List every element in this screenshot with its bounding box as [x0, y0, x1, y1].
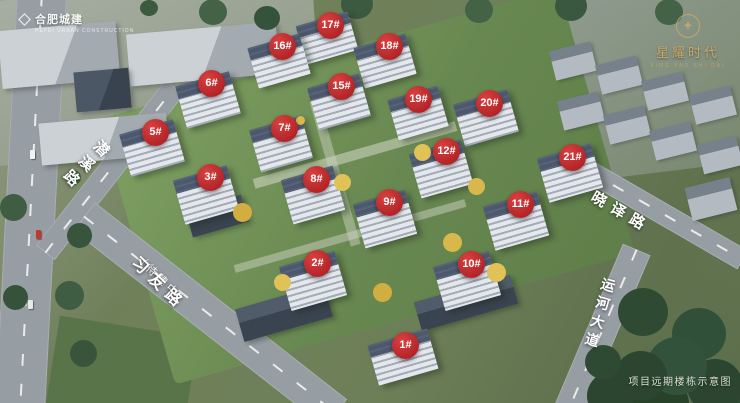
building-badge-16: 16# [269, 33, 296, 60]
building-badge-1: 1# [392, 332, 419, 359]
project-logo-name: 星耀时代 [656, 42, 720, 61]
project-logo: ✦ 星耀时代 XING YAO SHI DAI [646, 14, 730, 69]
developer-logo-tagline: HEFEI URBAN CONSTRUCTION [35, 28, 134, 34]
building-badge-11: 11# [507, 191, 534, 218]
industrial-building-dark [73, 68, 131, 113]
building-badge-9: 9# [376, 189, 403, 216]
building-badge-7: 7# [271, 115, 298, 142]
building-badge-5: 5# [142, 119, 169, 146]
developer-logo-name: 合肥城建 [35, 11, 83, 27]
tree-cluster-north [140, 0, 158, 16]
project-logo-tagline: XING YAO SHI DAI [650, 63, 725, 69]
building-badge-10: 10# [458, 251, 485, 278]
building-badge-21: 21# [559, 144, 586, 171]
building-badge-19: 19# [405, 86, 432, 113]
building-badge-18: 18# [376, 33, 403, 60]
building-badge-3: 3# [197, 164, 224, 191]
building-badge-12: 12# [433, 138, 460, 165]
car [30, 150, 35, 159]
render-caption: 项目远期楼栋示意图 [629, 373, 733, 388]
project-emblem-icon: ✦ [676, 14, 700, 38]
building-badge-17: 17# [317, 12, 344, 39]
building-badge-8: 8# [303, 166, 330, 193]
background-tower [685, 177, 738, 221]
building-badge-20: 20# [476, 90, 503, 117]
developer-logo: 合肥城建 HEFEI URBAN CONSTRUCTION [20, 11, 134, 34]
building-badge-2: 2# [304, 250, 331, 277]
aerial-masterplan-render: 1# 2# 3# 5# 6# 7# 8# 9# 10# 11# 12# 15# … [0, 0, 740, 403]
developer-logo-icon [18, 13, 31, 26]
car [28, 300, 33, 309]
building-badge-15: 15# [328, 73, 355, 100]
building-badge-6: 6# [198, 70, 225, 97]
car [36, 230, 41, 239]
